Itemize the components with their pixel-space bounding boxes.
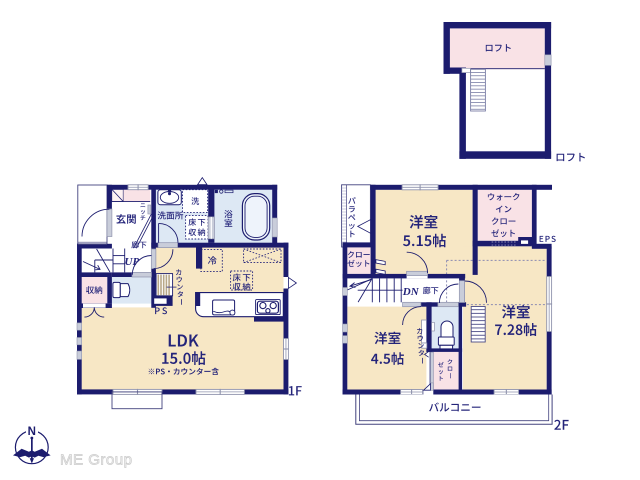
svg-text:UP: UP	[125, 256, 140, 268]
svg-text:ME Group: ME Group	[60, 452, 132, 469]
svg-text:N: N	[28, 426, 36, 438]
svg-text:DN: DN	[402, 286, 420, 298]
